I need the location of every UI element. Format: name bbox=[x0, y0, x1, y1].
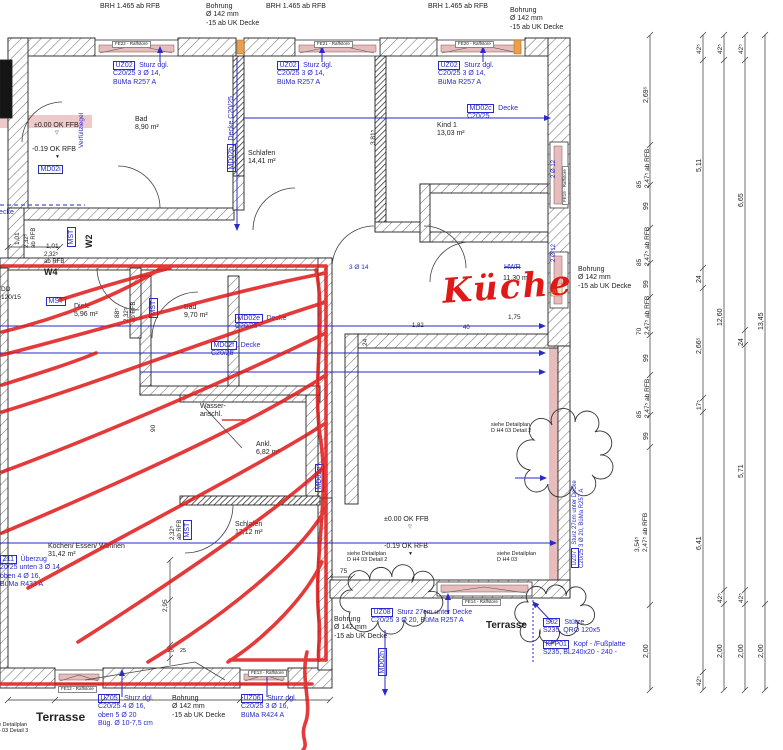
floor-plan-canvas: BRH 1.465 ab RFBBohrungØ 142 mm-15 ab UK… bbox=[0, 0, 783, 750]
red-marker-overlay bbox=[0, 0, 783, 750]
